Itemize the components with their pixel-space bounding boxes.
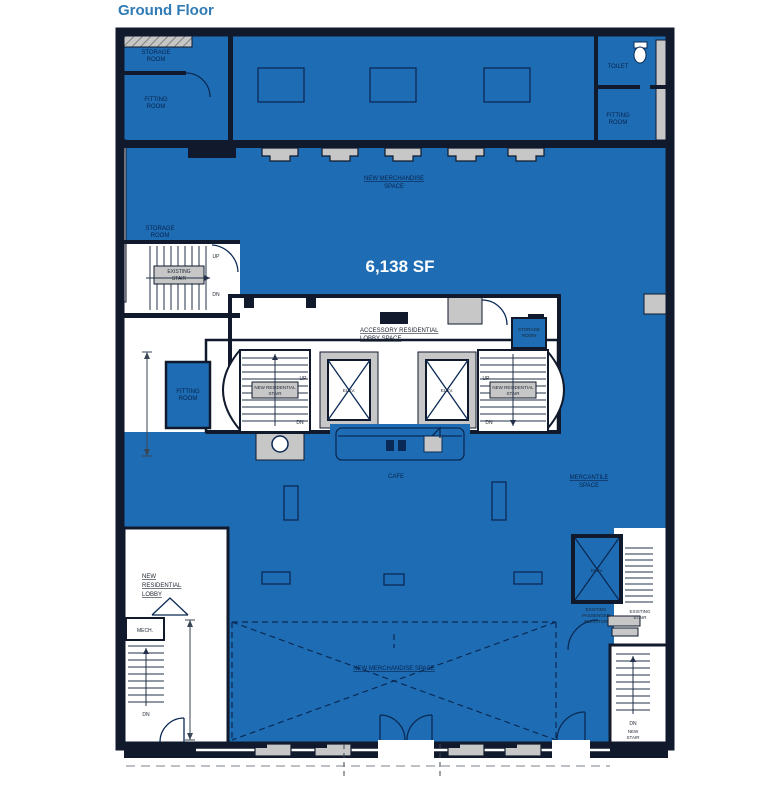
room-label: NEW MERCHANDISE SPACE bbox=[353, 666, 435, 672]
room-label: EXISTING bbox=[629, 609, 651, 614]
room-label: STAIR bbox=[507, 391, 521, 396]
room-label: ROOM bbox=[147, 57, 166, 63]
room-label: EXISTING bbox=[167, 269, 190, 275]
room-label: MERCANTILE bbox=[570, 475, 609, 481]
room-label: STORAGE bbox=[141, 50, 170, 56]
room-label: NEW MERCHANDISE bbox=[364, 176, 424, 182]
dn-label: DN bbox=[629, 721, 637, 727]
dn-label: DN bbox=[142, 712, 150, 718]
room-label: ROOM bbox=[179, 396, 198, 402]
room-label: NEW RESIDENTIAL bbox=[254, 385, 296, 390]
dn-label: DN bbox=[485, 420, 493, 426]
area-label: 6,138 SF bbox=[366, 257, 435, 276]
fitting-room-mid bbox=[166, 362, 210, 428]
floor-plan: Ground Floor bbox=[0, 0, 762, 785]
elevator-label: ELEV. bbox=[591, 568, 603, 573]
room-label: STORAGE bbox=[518, 327, 540, 332]
room-label: EXISTING bbox=[585, 607, 607, 612]
room-label: PASSENGER bbox=[582, 613, 610, 618]
room-label: STAIR bbox=[172, 276, 187, 282]
room-label: MECH. bbox=[137, 628, 153, 634]
up-label: UP bbox=[483, 376, 491, 382]
room-label: STORAGE bbox=[145, 226, 174, 232]
room-label: FITTING bbox=[176, 389, 200, 395]
room-label: STAIR bbox=[634, 615, 648, 620]
page-title: Ground Floor bbox=[118, 2, 214, 19]
room-label: LOBBY bbox=[142, 592, 162, 598]
room-label: ROOM bbox=[609, 120, 628, 126]
room-label: STAIR bbox=[627, 735, 641, 740]
elevator-label: ELEV. bbox=[441, 388, 453, 393]
toilet-fixture bbox=[634, 42, 647, 63]
room-label: ROOM bbox=[147, 104, 166, 110]
room-label: NEW bbox=[142, 574, 156, 580]
up-label: UP bbox=[300, 376, 308, 382]
room-label: ROOM bbox=[151, 233, 170, 239]
room-label: SPACE bbox=[579, 483, 599, 489]
room-label: RESIDENTIAL bbox=[142, 583, 182, 589]
room-label: STAIR bbox=[269, 391, 283, 396]
elevator-label: ELEV. bbox=[343, 388, 355, 393]
room-label: ACCESSORY RESIDENTIAL bbox=[360, 328, 439, 334]
cafe-counter bbox=[330, 424, 470, 468]
room-label: FITTING bbox=[144, 97, 168, 103]
dn-label: DN bbox=[212, 292, 220, 298]
room-label: LOBBY SPACE bbox=[360, 336, 401, 342]
room-label: CAFE bbox=[388, 474, 404, 480]
room-label: ELEVATOR bbox=[584, 619, 608, 624]
room-label: NEW RESIDENTIAL bbox=[492, 385, 534, 390]
room-label: NEW bbox=[628, 729, 639, 734]
dn-label: DN bbox=[296, 420, 304, 426]
room-label: SPACE bbox=[384, 184, 404, 190]
up-label: UP bbox=[213, 254, 221, 260]
room-label: TOILET bbox=[608, 64, 629, 70]
room-label: FITTING bbox=[606, 113, 630, 119]
room-label: ROOM bbox=[522, 333, 536, 338]
